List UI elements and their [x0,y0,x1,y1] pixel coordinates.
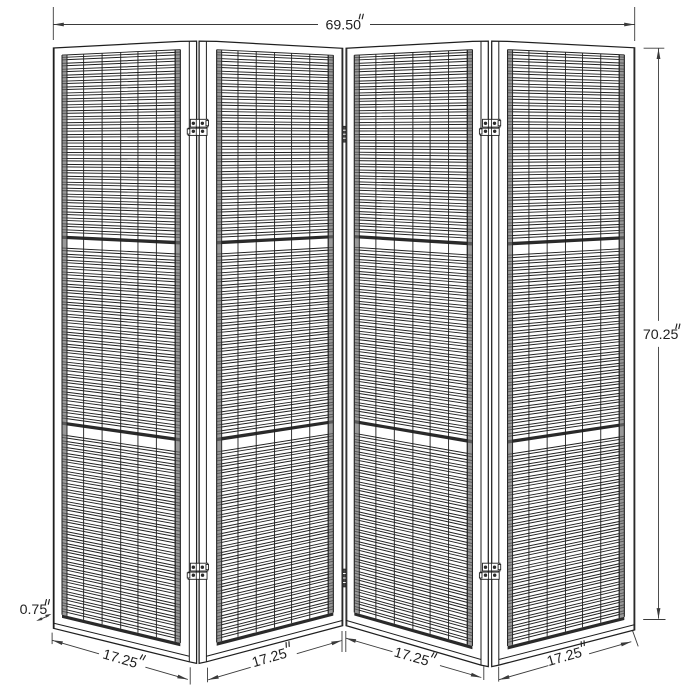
svg-text:0.75: 0.75 [20,602,48,618]
svg-text:69.50: 69.50 [326,17,362,33]
svg-text:70.25: 70.25 [643,327,679,343]
